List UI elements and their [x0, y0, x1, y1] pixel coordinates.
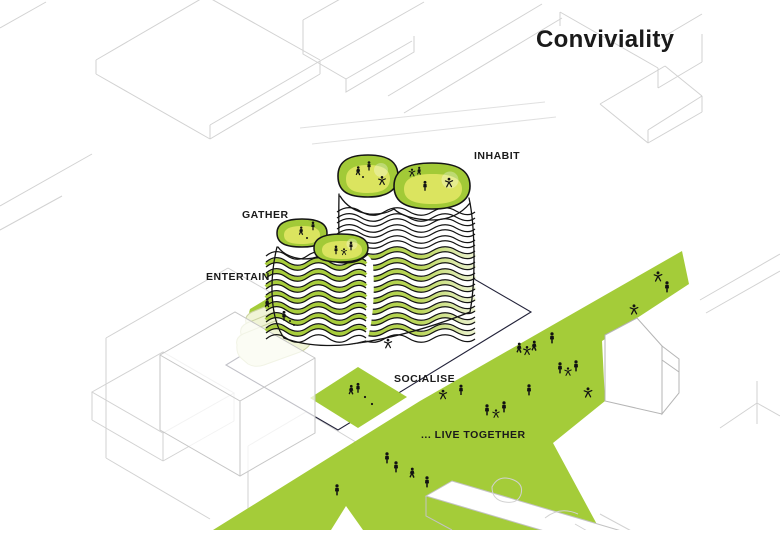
label-socialise: SOCIALISE: [394, 373, 455, 385]
conviviality-diagram: GATHER INHABIT ENTERTAIN SOCIALISE ... L…: [0, 0, 780, 552]
page-margin: [0, 530, 780, 552]
label-inhabit: INHABIT: [474, 150, 520, 162]
label-live-together: ... LIVE TOGETHER: [421, 429, 526, 441]
diagram-page: GATHER INHABIT ENTERTAIN SOCIALISE ... L…: [0, 0, 780, 552]
label-gather: GATHER: [242, 209, 289, 221]
gabled-house: [605, 318, 679, 414]
label-entertain: ENTERTAIN: [206, 271, 270, 283]
page-title: Conviviality: [536, 26, 675, 53]
